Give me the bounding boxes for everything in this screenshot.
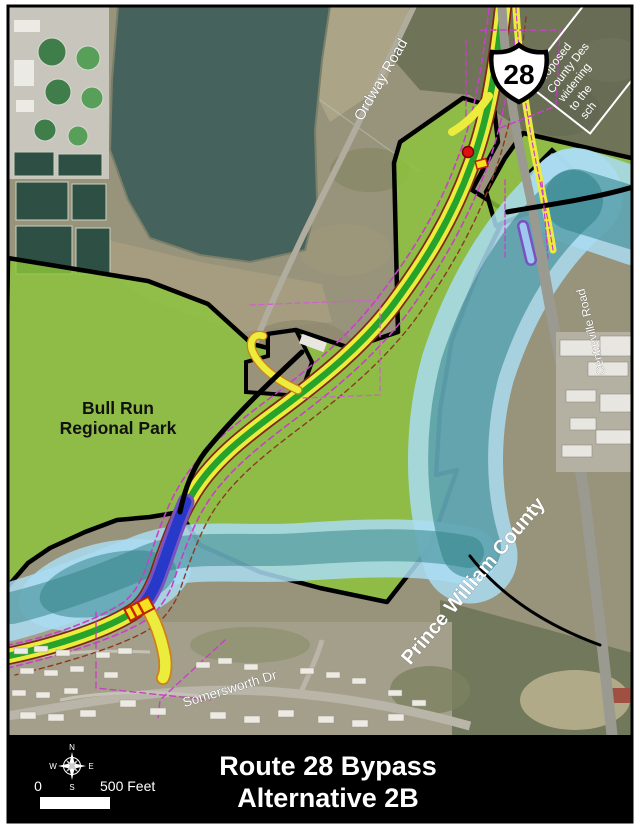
compass-n: N (69, 743, 75, 752)
compass-w: W (49, 762, 57, 771)
scale-bar-rect (40, 797, 110, 809)
interchange-node (463, 147, 474, 158)
map-title-line2: Alternative 2B (237, 783, 419, 813)
compass-e: E (88, 762, 93, 771)
label-bull-run-line1: Bull Run (82, 398, 154, 418)
scale-label: 500 Feet (100, 778, 155, 794)
compass-s: S (69, 783, 74, 792)
label-bull-run-line2: Regional Park (60, 418, 177, 438)
map-title-line1: Route 28 Bypass (219, 751, 437, 781)
interchange-box-north (475, 159, 488, 170)
shield-number: 28 (503, 59, 534, 90)
treatment-plant (9, 7, 110, 274)
map-sheet: Ordway Road Centreville Road Prince Will… (0, 0, 640, 828)
scale-zero: 0 (34, 778, 42, 794)
route28-map-svg: Ordway Road Centreville Road Prince Will… (0, 0, 640, 828)
title-bar: N S E W 0 500 Feet Route 28 Bypass Alter… (9, 735, 631, 821)
